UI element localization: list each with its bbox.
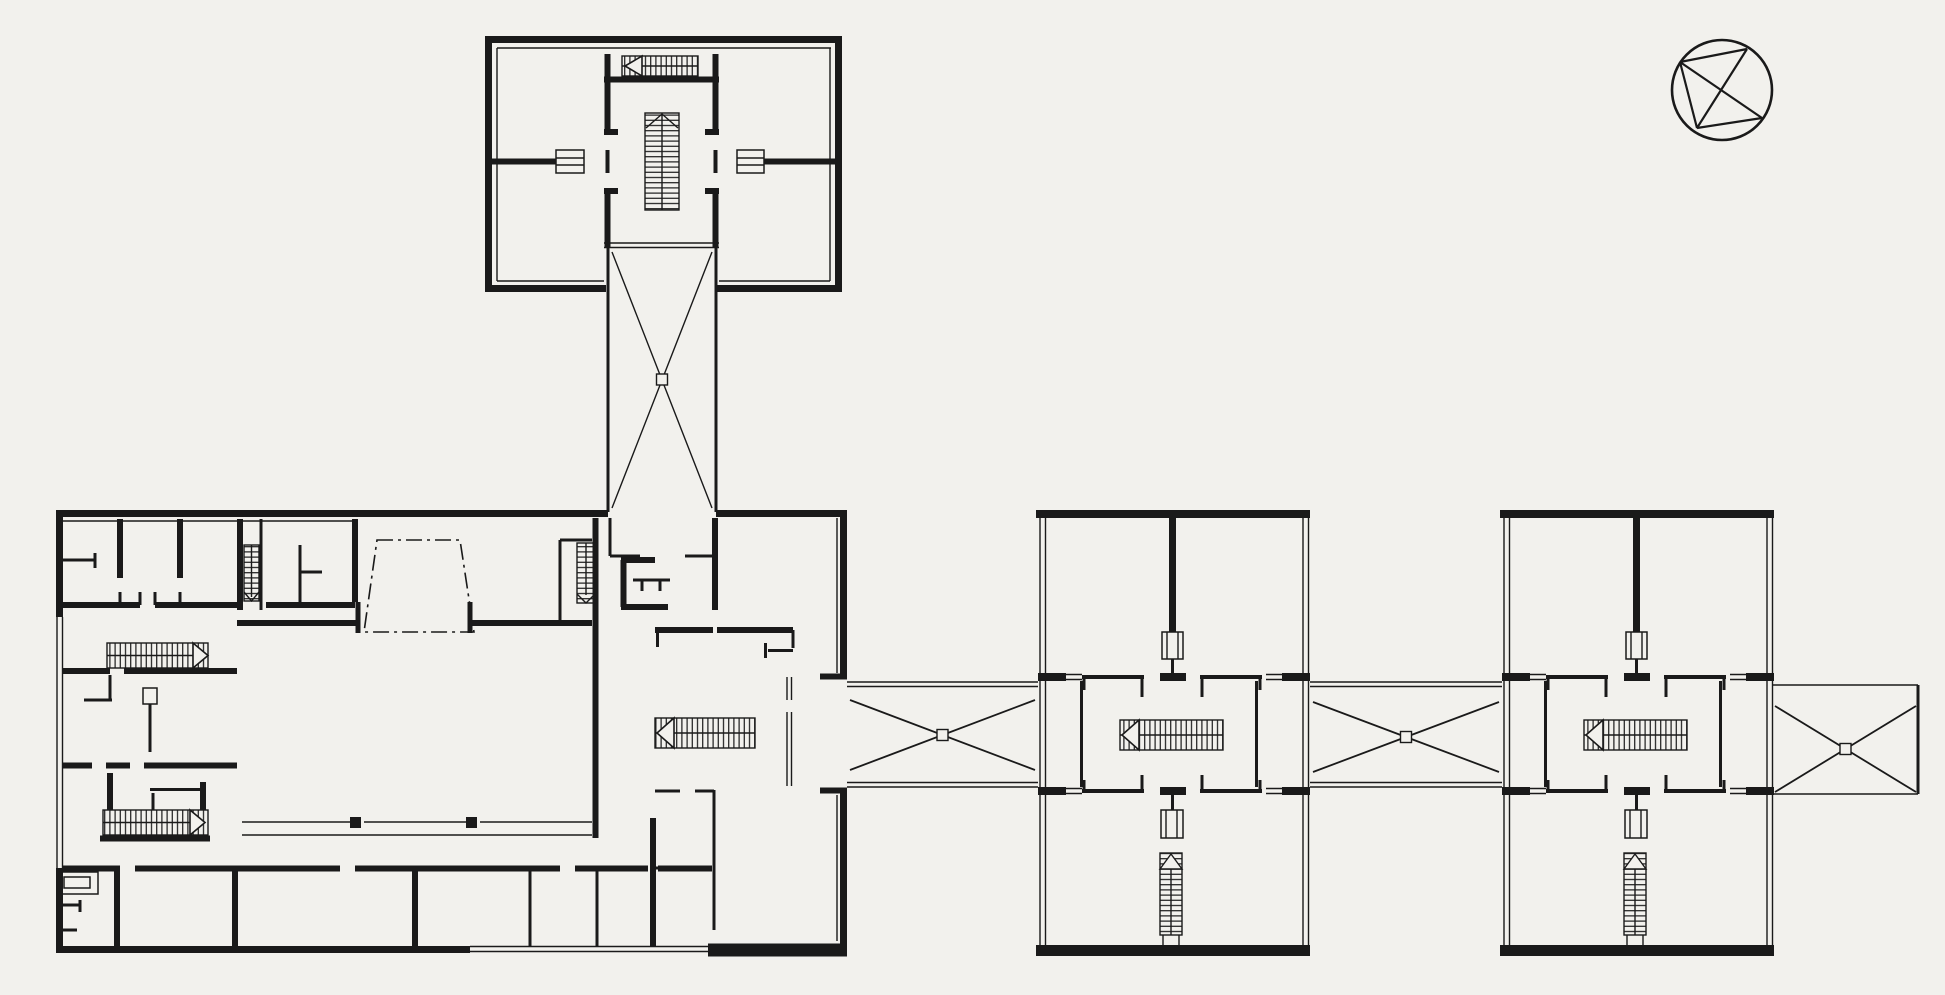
link-center-node <box>1401 732 1412 743</box>
stair-west-upper <box>107 643 208 668</box>
corridor-stair <box>1120 720 1223 750</box>
pavilion-upper-stair <box>622 56 698 76</box>
stair-east-hall <box>655 718 755 748</box>
link-center-node <box>657 374 668 385</box>
floor-plan-photo <box>0 0 1945 995</box>
courtyard-pillar <box>350 817 361 828</box>
link-center-node <box>937 730 948 741</box>
stair-service-north <box>244 545 259 601</box>
floor-plan-canvas <box>0 0 1945 995</box>
service-stair <box>1160 853 1182 935</box>
stair-west-lower <box>103 810 208 835</box>
courtyard-pillar <box>466 817 477 828</box>
link-center-node <box>1840 744 1851 755</box>
stair-service-center <box>577 543 595 603</box>
pavilion-main-stair <box>645 113 679 210</box>
paper-background <box>0 0 1945 995</box>
